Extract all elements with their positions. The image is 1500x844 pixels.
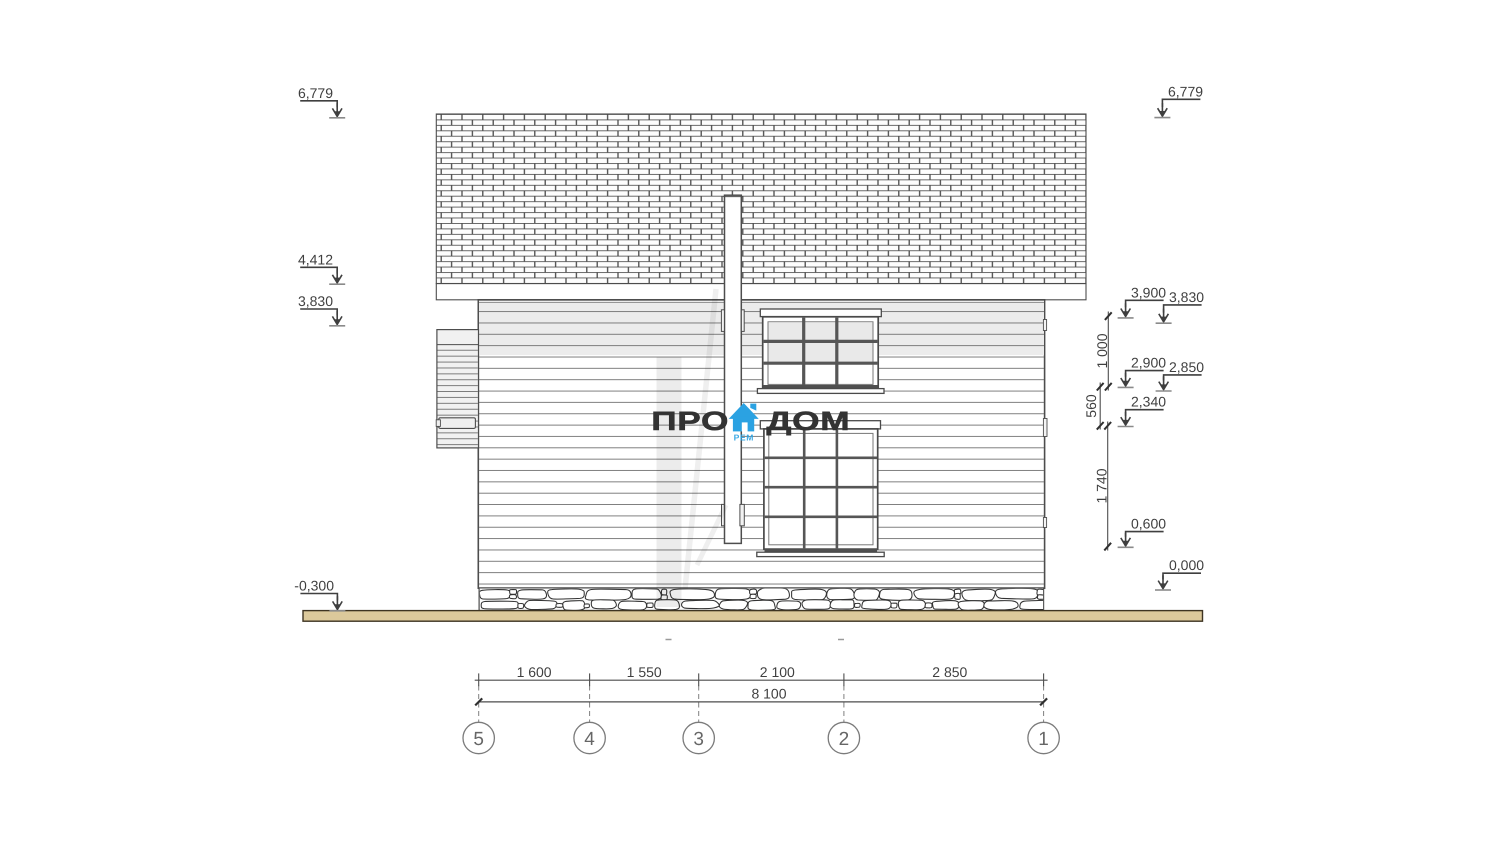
svg-text:2 100: 2 100 bbox=[760, 664, 795, 680]
svg-text:3,830: 3,830 bbox=[1169, 289, 1204, 305]
svg-text:ПРО: ПРО bbox=[651, 406, 729, 436]
svg-text:4,412: 4,412 bbox=[298, 251, 333, 267]
svg-text:1 600: 1 600 bbox=[517, 664, 552, 680]
svg-text:РЕМ: РЕМ bbox=[734, 433, 754, 443]
svg-text:5: 5 bbox=[473, 729, 484, 750]
svg-text:2 850: 2 850 bbox=[932, 664, 967, 680]
svg-text:1 550: 1 550 bbox=[627, 664, 662, 680]
svg-text:6,779: 6,779 bbox=[1168, 83, 1203, 99]
svg-text:560: 560 bbox=[1083, 394, 1099, 418]
svg-text:2,850: 2,850 bbox=[1169, 359, 1204, 375]
svg-text:6,779: 6,779 bbox=[298, 85, 333, 101]
svg-text:1: 1 bbox=[1038, 729, 1049, 750]
svg-text:0,600: 0,600 bbox=[1131, 516, 1166, 532]
svg-text:-0,300: -0,300 bbox=[294, 578, 334, 594]
svg-text:3: 3 bbox=[693, 729, 704, 750]
svg-text:0,000: 0,000 bbox=[1169, 557, 1204, 573]
svg-text:8 100: 8 100 bbox=[751, 686, 786, 702]
svg-text:3,830: 3,830 bbox=[298, 293, 333, 309]
svg-text:1 000: 1 000 bbox=[1094, 333, 1110, 368]
svg-text:2: 2 bbox=[839, 729, 850, 750]
svg-text:2,900: 2,900 bbox=[1131, 355, 1166, 371]
svg-text:ДОМ: ДОМ bbox=[766, 406, 850, 436]
svg-text:1 740: 1 740 bbox=[1093, 468, 1109, 503]
svg-text:4: 4 bbox=[584, 729, 595, 750]
svg-text:3,900: 3,900 bbox=[1131, 284, 1166, 300]
svg-text:2,340: 2,340 bbox=[1131, 394, 1166, 410]
